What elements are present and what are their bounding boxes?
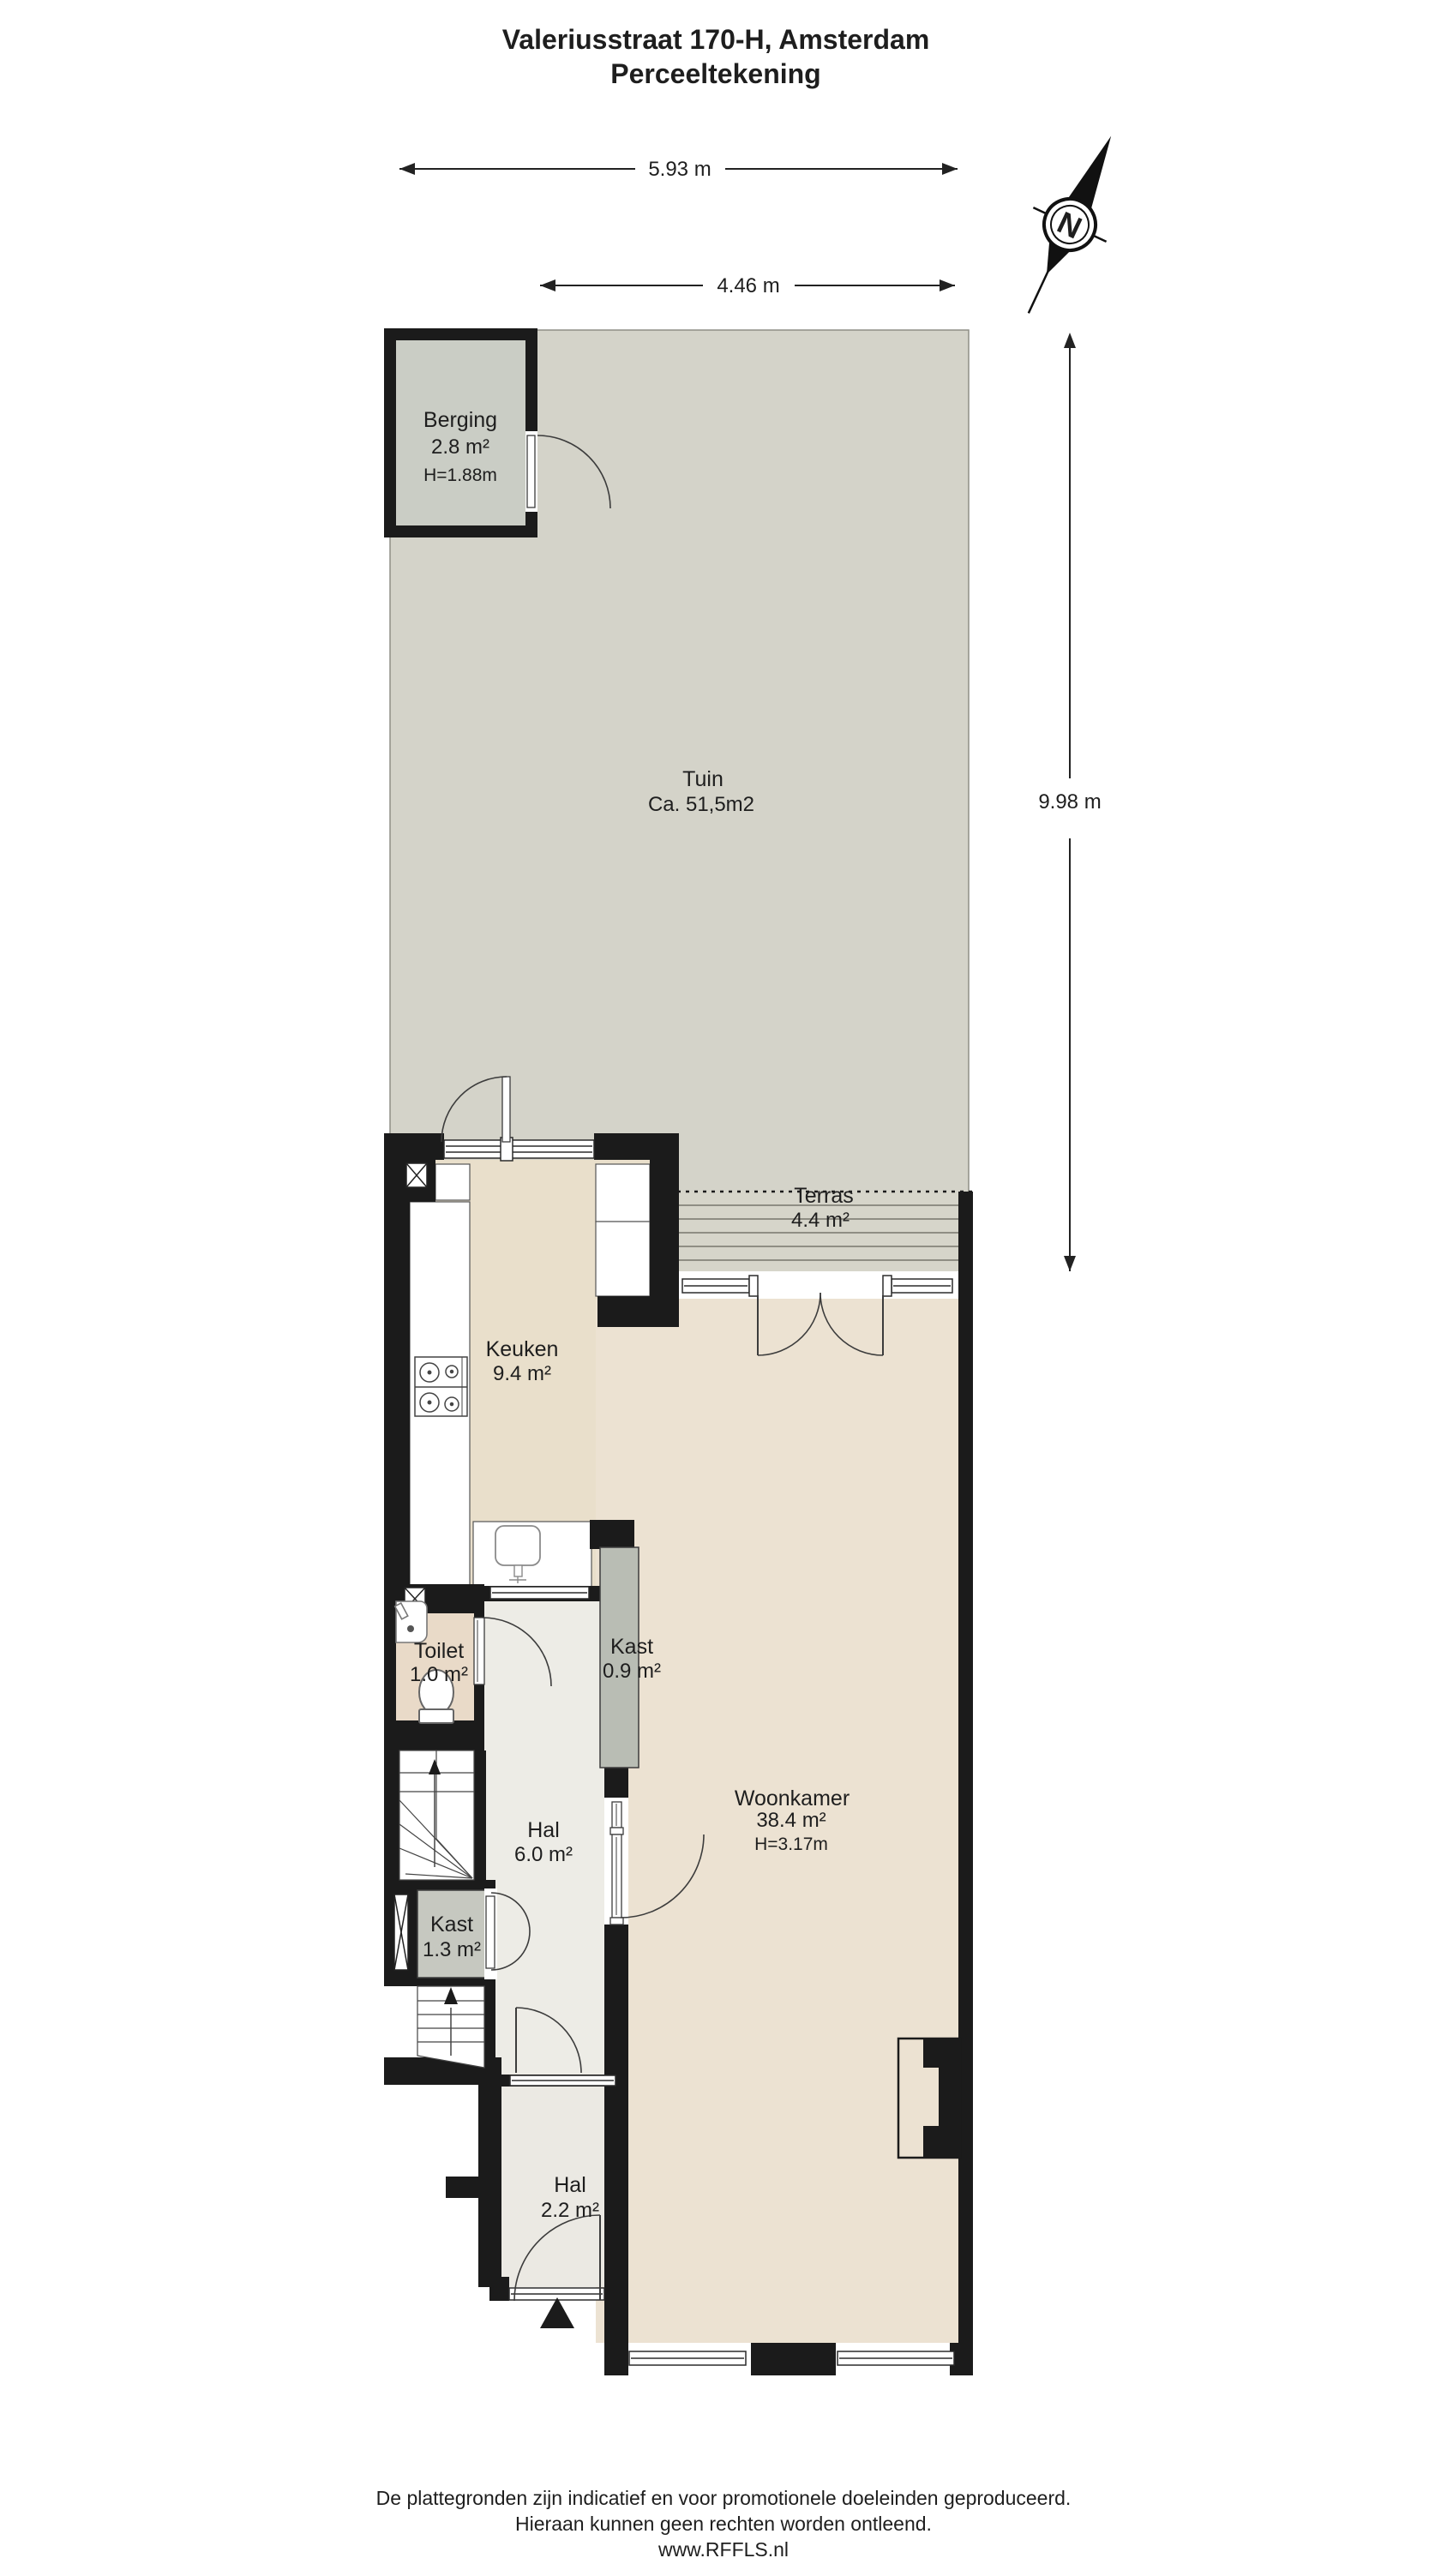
- window-kitchen-hal: [490, 1587, 589, 1599]
- toilet-name: Toilet: [414, 1639, 464, 1663]
- footer-disclaimer: De plattegronden zijn indicatief en voor…: [376, 2487, 1072, 2561]
- wall-segment: [474, 1684, 484, 1723]
- berging-name: Berging: [423, 408, 497, 432]
- staircase-lower: [417, 1986, 484, 2068]
- wall-segment: [597, 1296, 679, 1327]
- kast-door-leaf: [486, 1896, 495, 1968]
- shaft-icon: [394, 1894, 408, 1970]
- window-mullion: [749, 1276, 758, 1296]
- cabinet-top: [435, 1164, 470, 1200]
- wall-segment: [384, 1880, 495, 1890]
- tuin-name: Tuin: [682, 767, 723, 791]
- arrow-up-icon: [1064, 333, 1076, 348]
- hal-area: 6.0 m²: [514, 1843, 573, 1866]
- wall-segment: [604, 2343, 627, 2375]
- wall-segment: [594, 1133, 679, 1160]
- staircase-upper: [399, 1750, 474, 1880]
- kast-woonkamer-name: Kast: [610, 1635, 653, 1659]
- wall-segment: [384, 1133, 444, 1160]
- berging-door-leaf: [527, 435, 535, 507]
- dimension-total-width: 5.93 m: [399, 158, 958, 181]
- window-woonkamer-terras-left: [682, 1279, 749, 1293]
- woonkamer-name: Woonkamer: [735, 1786, 850, 1810]
- dimension-garden-width: 4.46 m: [540, 274, 955, 297]
- window-facade-right: [838, 2351, 954, 2365]
- tuin-area: Ca. 51,5m2: [648, 793, 754, 816]
- hand-basin-icon: [395, 1601, 427, 1642]
- kast-hal-name: Kast: [430, 1912, 473, 1937]
- wall-segment: [751, 2343, 836, 2375]
- arrow-right-icon: [942, 163, 958, 175]
- entrance-arrow-icon: [540, 2297, 574, 2328]
- dim-total-width-label: 5.93 m: [648, 158, 711, 181]
- arrow-down-icon: [1064, 1256, 1076, 1271]
- window-hal-partition: [510, 2075, 615, 2086]
- window-mullion: [883, 1276, 892, 1296]
- floorplan-canvas: Valeriusstraat 170-H, Amsterdam Perceelt…: [0, 0, 1447, 2572]
- terras-area: 4.4 m²: [791, 1209, 850, 1232]
- wall-segment: [590, 1520, 634, 1549]
- berging-ceiling: H=1.88m: [423, 465, 497, 485]
- stove-icon: [415, 1357, 467, 1416]
- woonkamer-ceiling: H=3.17m: [754, 1834, 828, 1854]
- wall-segment: [384, 1750, 399, 1880]
- keuken-area: 9.4 m²: [493, 1362, 551, 1385]
- toilet-area: 1.0 m²: [410, 1663, 468, 1686]
- cabinet-right-2: [596, 1222, 650, 1296]
- wall-segment: [478, 2085, 501, 2287]
- footer-line-2: Hieraan kunnen geen rechten worden ontle…: [515, 2513, 932, 2535]
- terras-name: Terras: [794, 1184, 853, 1208]
- room-terras: Terras 4.4 m²: [677, 1184, 973, 1271]
- wall-segment: [446, 2177, 478, 2198]
- wall-segment: [384, 1720, 484, 1750]
- woonkamer-area: 38.4 m²: [756, 1809, 826, 1832]
- entree-name: Hal: [554, 2173, 586, 2197]
- footer-line-3: www.RFFLS.nl: [657, 2538, 789, 2561]
- wall-segment: [958, 1192, 973, 2375]
- arrow-right-icon: [940, 279, 955, 291]
- north-arrow-icon: N: [992, 119, 1148, 330]
- keuken-name: Keuken: [486, 1337, 559, 1361]
- arrow-left-icon: [399, 163, 415, 175]
- wall-segment: [604, 1924, 628, 2375]
- chimney-niche: [898, 2039, 960, 2158]
- title-subtitle: Perceeltekening: [610, 58, 820, 89]
- wall-segment: [384, 1586, 396, 1723]
- shaft-icon: [406, 1163, 427, 1187]
- window-facade-left: [629, 2351, 746, 2365]
- hal-name: Hal: [527, 1818, 560, 1842]
- window-entry-threshold: [509, 2288, 604, 2300]
- cabinet-right-1: [596, 1164, 650, 1222]
- wall-segment: [474, 1750, 486, 1880]
- arrow-left-icon: [540, 279, 555, 291]
- wall-segment: [489, 2277, 509, 2301]
- kast-woonkamer-area: 0.9 m²: [603, 1660, 661, 1683]
- berging-area: 2.8 m²: [431, 435, 489, 459]
- dim-garden-depth-label: 9.98 m: [1038, 790, 1101, 814]
- wall-segment: [474, 1601, 484, 1618]
- entree-floor: [501, 2087, 604, 2287]
- dimension-garden-depth: 9.98 m: [1038, 333, 1101, 1271]
- title-address: Valeriusstraat 170-H, Amsterdam: [502, 24, 930, 55]
- window-woonkamer-terras-right: [892, 1279, 952, 1293]
- dim-garden-width-label: 4.46 m: [717, 274, 779, 297]
- window-kitchen-garden: [444, 1138, 594, 1161]
- footer-line-1: De plattegronden zijn indicatief en voor…: [376, 2487, 1072, 2509]
- kast-hal-area: 1.3 m²: [423, 1938, 481, 1961]
- wall-segment: [384, 1160, 410, 1586]
- page-title: Valeriusstraat 170-H, Amsterdam Perceelt…: [502, 24, 930, 89]
- entree-area: 2.2 m²: [541, 2199, 599, 2222]
